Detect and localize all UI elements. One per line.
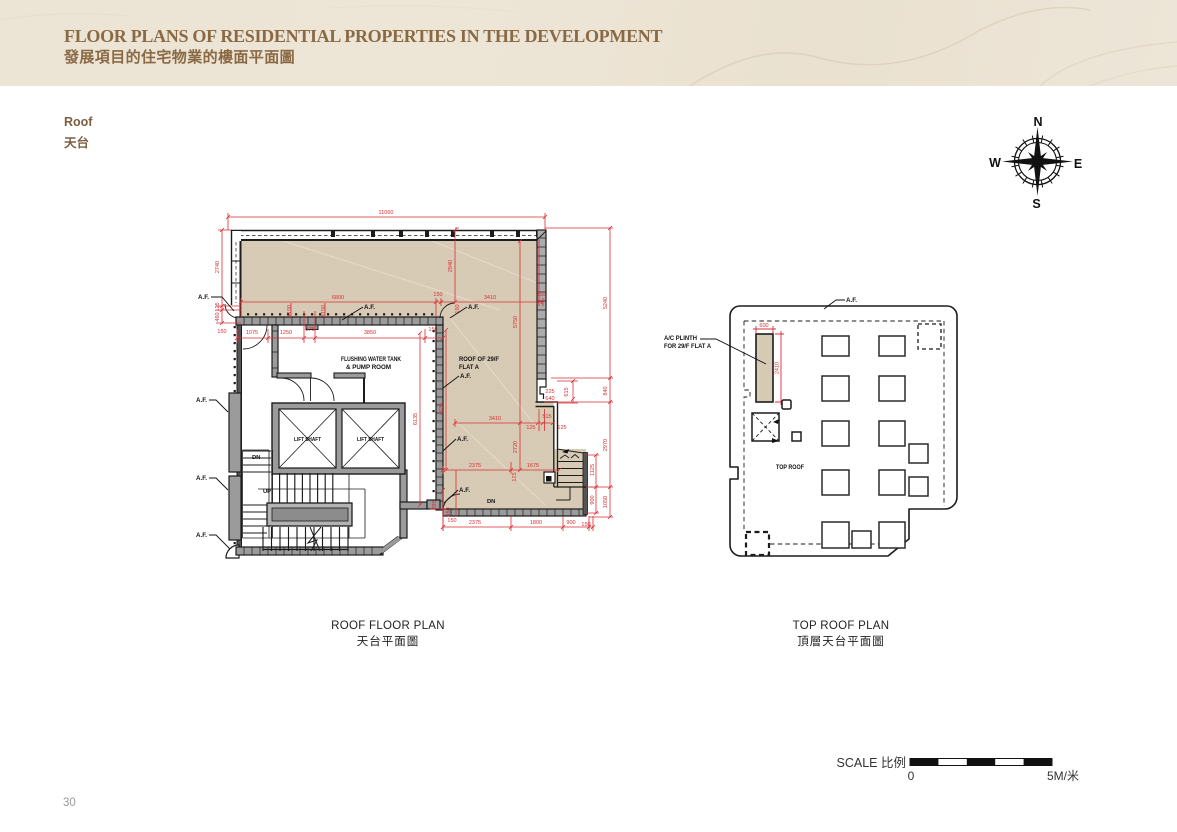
svg-text:A.F.: A.F. (457, 436, 468, 443)
svg-text:4150: 4150 (287, 305, 293, 317)
svg-text:2740: 2740 (215, 261, 221, 273)
svg-text:DN: DN (252, 455, 260, 461)
svg-text:LIFT SHAFT: LIFT SHAFT (294, 437, 322, 443)
svg-text:4635: 4635 (439, 403, 445, 415)
svg-text:5240: 5240 (603, 297, 609, 309)
svg-text:125: 125 (526, 425, 535, 431)
svg-text:N: N (1033, 115, 1042, 129)
svg-text:A.F.: A.F. (196, 475, 207, 482)
svg-text:ROOF OF 29/F: ROOF OF 29/F (459, 356, 499, 363)
svg-text:A.F.: A.F. (468, 304, 479, 311)
svg-text:E: E (1074, 157, 1082, 171)
svg-text:1075: 1075 (246, 330, 258, 336)
svg-text:150: 150 (536, 292, 545, 298)
svg-text:頂層天台平面圖: 頂層天台平面圖 (797, 634, 885, 648)
svg-text:600: 600 (759, 323, 768, 329)
svg-text:150: 150 (447, 518, 456, 524)
svg-text:DN: DN (487, 499, 495, 505)
svg-text:A.F.: A.F. (364, 304, 375, 311)
svg-text:A.F.: A.F. (846, 297, 857, 304)
svg-text:150: 150 (581, 522, 590, 528)
svg-text:450: 450 (446, 507, 452, 516)
svg-text:天台平面圖: 天台平面圖 (357, 634, 420, 648)
svg-text:1050: 1050 (603, 496, 609, 508)
svg-text:FLUSHING WATER TANK: FLUSHING WATER TANK (341, 356, 401, 363)
svg-text:& PUMP ROOM: & PUMP ROOM (346, 364, 391, 371)
svg-text:5750: 5750 (513, 316, 519, 328)
svg-text:125: 125 (215, 302, 221, 311)
svg-text:640: 640 (545, 396, 554, 402)
svg-text:125: 125 (557, 425, 566, 431)
svg-text:225: 225 (545, 389, 554, 395)
svg-text:515: 515 (542, 414, 551, 420)
svg-text:A.F.: A.F. (459, 487, 470, 494)
svg-text:1800: 1800 (530, 520, 542, 526)
svg-text:1675: 1675 (527, 463, 539, 469)
svg-text:A.F.: A.F. (196, 532, 207, 539)
svg-text:2940: 2940 (448, 260, 454, 272)
svg-text:900: 900 (590, 495, 596, 504)
svg-text:0: 0 (908, 769, 915, 783)
svg-text:2410: 2410 (775, 362, 781, 374)
svg-text:W: W (989, 156, 1001, 170)
svg-text:LIFT SHAFT: LIFT SHAFT (357, 437, 385, 443)
svg-text:460: 460 (215, 312, 221, 321)
svg-text:1250: 1250 (280, 330, 292, 336)
svg-text:TOP ROOF PLAN: TOP ROOF PLAN (793, 620, 890, 632)
svg-text:6135: 6135 (413, 413, 419, 425)
svg-text:UP: UP (263, 489, 271, 495)
svg-text:615: 615 (564, 387, 570, 396)
svg-text:150: 150 (217, 329, 226, 335)
svg-text:ROOF FLOOR PLAN: ROOF FLOOR PLAN (331, 620, 445, 632)
svg-text:840: 840 (603, 386, 609, 395)
svg-text:2720: 2720 (513, 441, 519, 453)
svg-text:150: 150 (455, 304, 461, 313)
svg-text:S: S (1032, 197, 1040, 211)
svg-text:TOP ROOF: TOP ROOF (776, 464, 804, 471)
svg-text:2970: 2970 (603, 439, 609, 451)
svg-text:SCALE 比例: SCALE 比例 (837, 756, 906, 770)
svg-text:375: 375 (305, 327, 314, 333)
svg-text:125: 125 (512, 472, 518, 481)
svg-text:295: 295 (432, 500, 438, 509)
svg-text:900: 900 (566, 520, 575, 526)
svg-text:4150: 4150 (321, 305, 327, 317)
svg-text:2375: 2375 (469, 463, 481, 469)
svg-text:11060: 11060 (379, 210, 394, 216)
svg-text:A/C PLINTH: A/C PLINTH (664, 335, 698, 342)
svg-text:3410: 3410 (489, 416, 501, 422)
svg-text:150: 150 (428, 327, 437, 333)
svg-text:3850: 3850 (364, 330, 376, 336)
svg-text:5M/米: 5M/米 (1047, 769, 1079, 783)
svg-text:2375: 2375 (469, 520, 481, 526)
svg-text:6800: 6800 (332, 295, 344, 301)
svg-text:A.F.: A.F. (460, 373, 471, 380)
svg-text:3410: 3410 (484, 295, 496, 301)
svg-text:FLAT A: FLAT A (459, 364, 479, 371)
svg-text:FOR 29/F FLAT A: FOR 29/F FLAT A (664, 343, 711, 350)
svg-text:A.F.: A.F. (196, 397, 207, 404)
svg-text:150: 150 (433, 292, 442, 298)
svg-text:A.F.: A.F. (198, 294, 209, 301)
svg-text:1125: 1125 (590, 464, 596, 476)
